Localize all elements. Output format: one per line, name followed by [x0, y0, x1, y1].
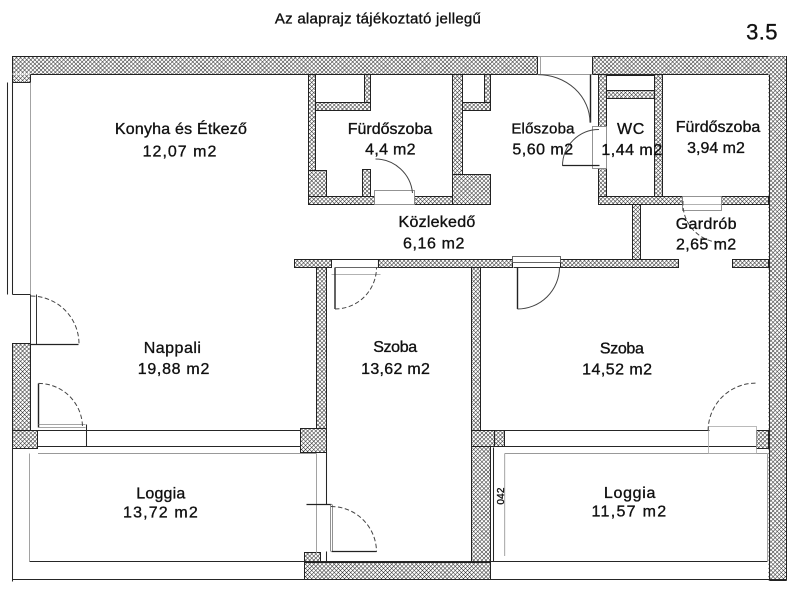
svg-text:Szoba: Szoba — [600, 341, 644, 358]
svg-text:Az alaprajz tájékoztató jelleg: Az alaprajz tájékoztató jellegű — [275, 11, 481, 28]
svg-text:Előszoba: Előszoba — [511, 121, 575, 138]
svg-text:6,16 m2: 6,16 m2 — [403, 236, 465, 253]
svg-text:1,44 m2: 1,44 m2 — [601, 142, 662, 159]
svg-text:3.5: 3.5 — [746, 20, 778, 45]
svg-text:12,07 m2: 12,07 m2 — [143, 144, 218, 161]
svg-text:Nappali: Nappali — [144, 340, 202, 357]
svg-text:042: 042 — [496, 487, 507, 505]
svg-text:3,94 m2: 3,94 m2 — [687, 140, 745, 157]
svg-text:11,57 m2: 11,57 m2 — [592, 504, 668, 521]
svg-text:19,88 m2: 19,88 m2 — [138, 361, 210, 378]
svg-text:13,72 m2: 13,72 m2 — [123, 505, 199, 522]
svg-text:4,4 m2: 4,4 m2 — [365, 142, 416, 159]
svg-text:Gardrób: Gardrób — [676, 216, 737, 233]
svg-text:2,65 m2: 2,65 m2 — [676, 237, 737, 254]
svg-text:Loggia: Loggia — [136, 486, 185, 503]
svg-text:Közlekedő: Közlekedő — [399, 214, 476, 231]
svg-text:Loggia: Loggia — [604, 485, 656, 502]
svg-text:13,62 m2: 13,62 m2 — [361, 361, 430, 378]
svg-text:5,60 m2: 5,60 m2 — [512, 142, 573, 159]
svg-text:Fürdőszoba: Fürdőszoba — [348, 121, 433, 138]
svg-text:14,52 m2: 14,52 m2 — [582, 362, 652, 379]
svg-text:Szoba: Szoba — [373, 339, 417, 356]
svg-text:Konyha és Étkező: Konyha és Étkező — [115, 119, 247, 138]
svg-text:WC: WC — [617, 121, 645, 138]
svg-text:Fürdőszoba: Fürdőszoba — [676, 119, 761, 136]
